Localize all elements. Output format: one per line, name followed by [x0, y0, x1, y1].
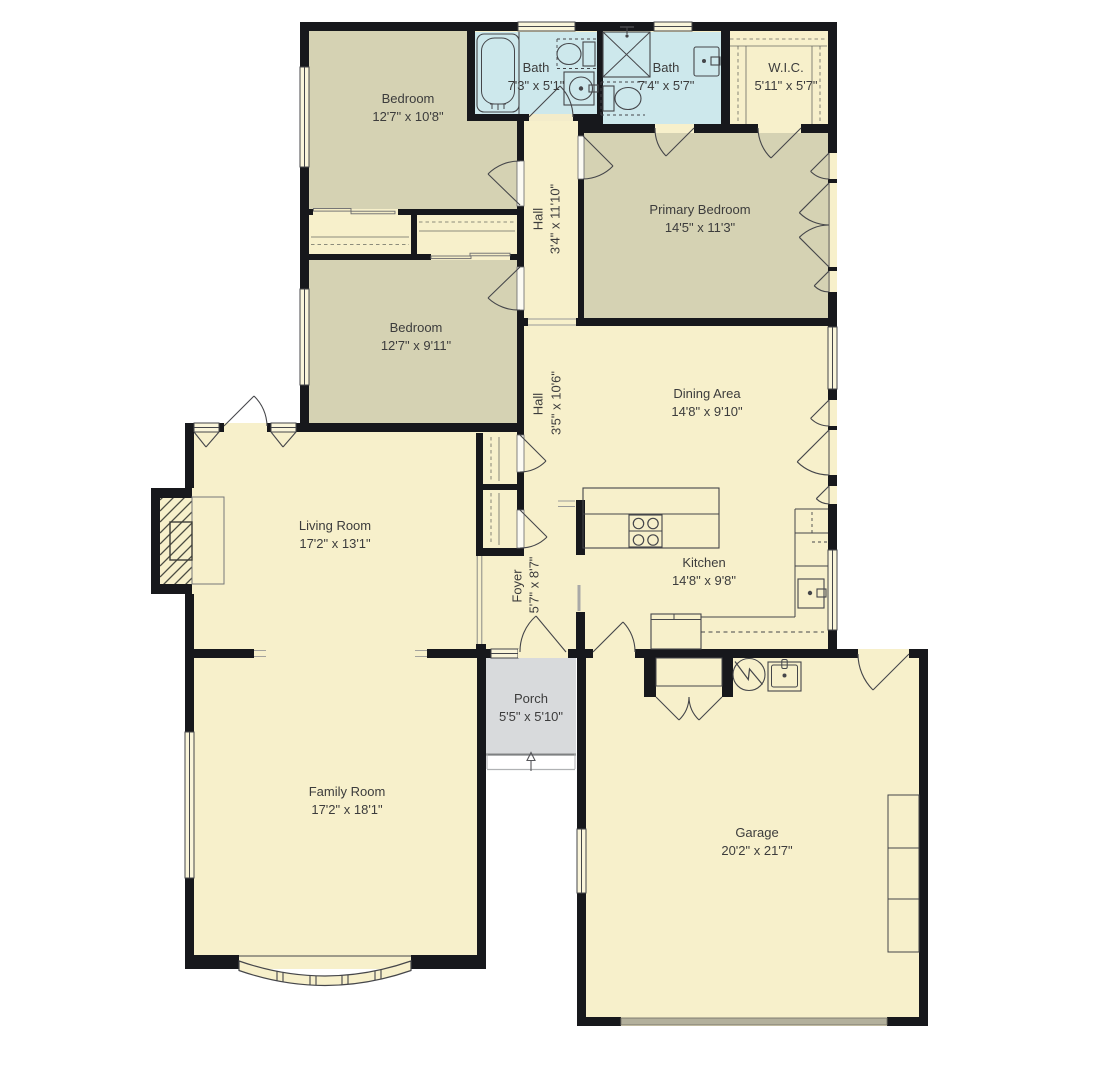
svg-text:7'4" x 5'7": 7'4" x 5'7": [638, 78, 695, 93]
svg-text:Garage: Garage: [735, 825, 778, 840]
svg-text:7'3" x 5'1": 7'3" x 5'1": [508, 78, 565, 93]
svg-text:Hall: Hall: [531, 208, 546, 231]
svg-text:Porch: Porch: [514, 691, 548, 706]
svg-text:Hall: Hall: [531, 393, 546, 416]
svg-text:Dining Area: Dining Area: [673, 386, 741, 401]
svg-text:17'2" x 18'1": 17'2" x 18'1": [311, 802, 383, 817]
svg-text:5'5" x 5'10": 5'5" x 5'10": [499, 709, 563, 724]
svg-text:12'7" x 9'11": 12'7" x 9'11": [381, 338, 452, 353]
svg-text:5'11" x 5'7": 5'11" x 5'7": [754, 78, 817, 93]
svg-text:3'5" x 10'6": 3'5" x 10'6": [549, 371, 564, 435]
svg-text:W.I.C.: W.I.C.: [768, 60, 803, 75]
svg-text:14'8" x 9'10": 14'8" x 9'10": [671, 404, 743, 419]
svg-text:Family Room: Family Room: [309, 784, 386, 799]
svg-text:20'2" x 21'7": 20'2" x 21'7": [721, 843, 793, 858]
svg-text:Living Room: Living Room: [299, 518, 371, 533]
svg-text:3'4" x 11'10": 3'4" x 11'10": [548, 183, 563, 254]
svg-text:17'2" x 13'1": 17'2" x 13'1": [299, 536, 371, 551]
svg-text:Bath: Bath: [523, 60, 550, 75]
svg-text:Bedroom: Bedroom: [382, 91, 435, 106]
svg-text:5'7" x 8'7": 5'7" x 8'7": [527, 556, 542, 613]
svg-text:Kitchen: Kitchen: [682, 555, 725, 570]
svg-text:Foyer: Foyer: [510, 569, 525, 603]
svg-text:14'8" x 9'8": 14'8" x 9'8": [672, 573, 736, 588]
svg-text:14'5" x 11'3": 14'5" x 11'3": [665, 220, 736, 235]
svg-text:Primary Bedroom: Primary Bedroom: [649, 202, 750, 217]
svg-text:Bath: Bath: [653, 60, 680, 75]
svg-text:12'7" x 10'8": 12'7" x 10'8": [372, 109, 444, 124]
svg-text:Bedroom: Bedroom: [390, 320, 443, 335]
